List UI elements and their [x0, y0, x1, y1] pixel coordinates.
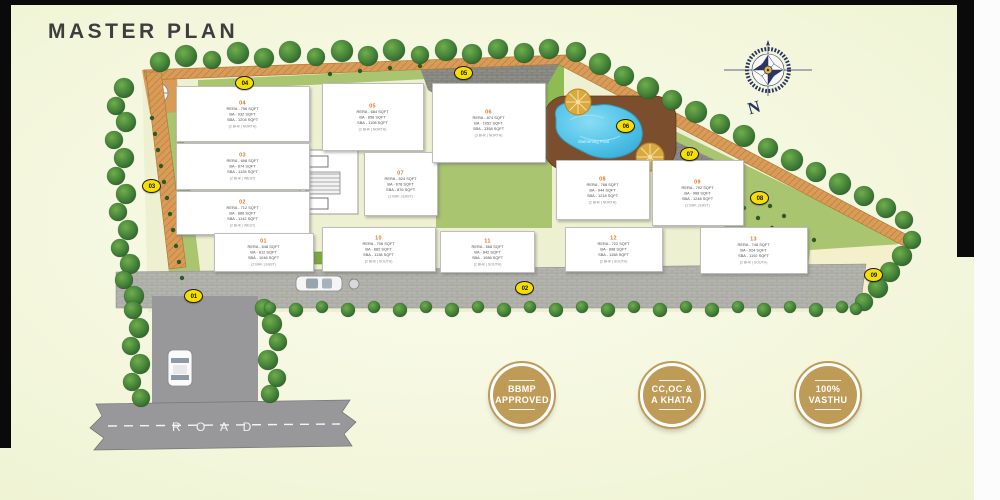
unit-config: (2 BHK | SOUTH) — [365, 259, 393, 264]
tree-icon — [107, 97, 125, 115]
unit-config: (1 BHK | EAST) — [389, 194, 414, 199]
tree-icon — [614, 66, 634, 86]
master-plan-page: { "title": "MASTER PLAN", "compass": { "… — [0, 0, 1000, 500]
hedge-icon — [850, 303, 862, 315]
tree-icon — [150, 52, 170, 72]
tree-icon — [122, 337, 140, 355]
tree-icon — [116, 184, 136, 204]
unit-card: 06 RERA - 874 SQFT BA - 1052 SQFT SBA - … — [432, 83, 546, 163]
tree-icon — [105, 131, 123, 149]
unit-sba: SBA - 1358 SQFT — [473, 127, 504, 132]
badge-line2: APPROVED — [495, 395, 549, 406]
tree-icon — [854, 186, 874, 206]
unit-card: 08 RERA - 768 SQFT BA - 944 SQFT SBA - 1… — [556, 160, 650, 220]
unit-config: (2 BHK | WEST) — [230, 176, 255, 181]
badge-rule — [509, 380, 535, 381]
tree-icon — [566, 42, 586, 62]
badge-line1: 100% — [816, 384, 841, 395]
hedge-icon — [497, 303, 511, 317]
tree-icon — [876, 198, 896, 218]
tree-icon — [203, 51, 221, 69]
unit-number: 05 — [370, 103, 377, 110]
unit-config: (3 BHK | NORTH) — [475, 133, 503, 138]
unit-number: 02 — [240, 199, 247, 206]
unit-ba: BA - 932 SQFT — [230, 112, 256, 117]
tree-icon — [175, 45, 197, 67]
hedge-icon — [601, 303, 615, 317]
unit-ba: BA - 1052 SQFT — [475, 121, 504, 126]
unit-ba: BA - 886 SQFT — [230, 211, 256, 216]
lawn-center — [436, 162, 552, 228]
tree-icon — [130, 354, 150, 374]
tree-icon — [488, 39, 508, 59]
tree-icon — [123, 373, 141, 391]
hedge-icon — [368, 301, 380, 313]
hedge-icon — [420, 301, 432, 313]
shrub-icon — [174, 244, 178, 248]
car-icon — [168, 350, 192, 386]
tree-icon — [662, 90, 682, 110]
unit-config: (2 BHK | NORTH) — [359, 127, 387, 132]
unit-config: (2 BHK | NORTH) — [229, 124, 257, 129]
tree-icon — [109, 203, 127, 221]
tree-icon — [806, 162, 826, 182]
hedge-icon — [289, 303, 303, 317]
unit-card: 01 RERA - 648 SQFT BA - 812 SQFT SBA - 1… — [214, 233, 314, 272]
unit-rera: RERA - 524 SQFT — [385, 177, 417, 182]
hedge-icon — [445, 303, 459, 317]
hedge-icon — [549, 303, 563, 317]
unit-sba: SBA - 1128 SQFT — [228, 170, 259, 175]
badge-rule — [815, 409, 841, 410]
tree-icon — [107, 167, 125, 185]
umbrella-icon — [565, 89, 591, 115]
tree-icon — [129, 318, 149, 338]
site-marker-09: 09 — [864, 268, 883, 282]
tree-icon — [903, 231, 921, 249]
unit-sba: SBA - 1158 SQFT — [599, 253, 630, 258]
unit-config: (2 BHK | SOUTH) — [474, 262, 502, 267]
shrub-icon — [150, 116, 154, 120]
site-marker-04: 04 — [235, 76, 254, 90]
unit-sba: SBA - 1086 SQFT — [472, 256, 503, 261]
unit-ba: BA - 858 SQFT — [360, 115, 386, 120]
unit-number: 07 — [398, 170, 405, 177]
badge-cc-oc-khata: CC,OC & A KHATA — [638, 361, 706, 429]
unit-card: 09 RERA - 792 SQFT BA - 968 SQFT SBA - 1… — [652, 160, 744, 226]
badge-line2: VASTHU — [809, 395, 848, 406]
tree-icon — [829, 173, 851, 195]
hedge-icon — [264, 302, 276, 314]
hedge-icon — [576, 301, 588, 313]
unit-number: 04 — [240, 100, 247, 107]
tree-icon — [227, 42, 249, 64]
unit-sba: SBA - 1142 SQFT — [228, 217, 259, 222]
shrub-icon — [168, 212, 172, 216]
unit-ba: BA - 968 SQFT — [685, 191, 711, 196]
tree-icon — [637, 77, 659, 99]
unit-card: 02 RERA - 712 SQFT BA - 886 SQFT SBA - 1… — [176, 191, 310, 235]
unit-sba: SBA - 1218 SQFT — [587, 194, 618, 199]
unit-card: 03 RERA - 698 SQFT BA - 874 SQFT SBA - 1… — [176, 143, 310, 190]
unit-card: 07 RERA - 524 SQFT BA - 678 SQFT SBA - 8… — [364, 152, 438, 216]
tree-icon — [514, 43, 534, 63]
tree-icon — [331, 40, 353, 62]
unit-ba: BA - 944 SQFT — [590, 188, 616, 193]
site-marker-05: 05 — [454, 66, 473, 80]
site-marker-06: 06 — [616, 119, 635, 133]
hedge-icon — [836, 301, 848, 313]
tree-icon — [895, 211, 913, 229]
hedge-icon — [757, 303, 771, 317]
site-marker-03: 03 — [142, 179, 161, 193]
unit-card: 05 RERA - 684 SQFT BA - 858 SQFT SBA - 1… — [322, 83, 424, 151]
tree-icon — [268, 369, 286, 387]
shrub-icon — [812, 238, 816, 242]
hedge-icon — [316, 301, 328, 313]
shrub-icon — [156, 148, 160, 152]
shrub-icon — [153, 132, 157, 136]
hedge-icon — [784, 301, 796, 313]
tree-icon — [589, 53, 611, 75]
badge-rule — [815, 380, 841, 381]
unit-card: 12 RERA - 722 SQFT BA - 898 SQFT SBA - 1… — [565, 227, 663, 272]
unit-rera: RERA - 756 SQFT — [227, 107, 259, 112]
tree-icon — [118, 220, 138, 240]
shrub-icon — [388, 66, 392, 70]
tree-icon — [258, 350, 278, 370]
unit-number: 09 — [695, 179, 702, 186]
tree-icon — [124, 301, 142, 319]
tree-icon — [115, 271, 133, 289]
hedge-icon — [732, 301, 744, 313]
unit-ba: BA - 678 SQFT — [388, 182, 414, 187]
unit-sba: SBA - 1204 SQFT — [227, 118, 258, 123]
access-road — [152, 296, 258, 404]
shrub-icon — [358, 69, 362, 73]
tree-icon — [781, 149, 803, 171]
unit-number: 08 — [600, 176, 607, 183]
tree-icon — [261, 385, 279, 403]
unit-sba: SBA - 1192 SQFT — [739, 254, 770, 259]
tree-icon — [733, 125, 755, 147]
unit-config: (2 BHK | EAST) — [686, 203, 711, 208]
shrub-icon — [328, 72, 332, 76]
shrub-icon — [177, 260, 181, 264]
hedge-icon — [341, 303, 355, 317]
unit-card: 10 RERA - 706 SQFT BA - 882 SQFT SBA - 1… — [322, 227, 436, 272]
badge-rule — [509, 409, 535, 410]
unit-sba: SBA - 1046 SQFT — [248, 256, 279, 261]
site-marker-07: 07 — [680, 147, 699, 161]
shrub-icon — [180, 276, 184, 280]
tree-icon — [383, 39, 405, 61]
hedge-icon — [524, 301, 536, 313]
site-marker-01: 01 — [184, 289, 203, 303]
unit-rera: RERA - 874 SQFT — [473, 116, 505, 121]
unit-config: (2 BHK | WEST) — [230, 223, 255, 228]
hedge-icon — [705, 303, 719, 317]
unit-sba: SBA - 1248 SQFT — [682, 197, 713, 202]
tree-icon — [539, 39, 559, 59]
unit-number: 06 — [486, 109, 493, 116]
shrub-icon — [756, 216, 760, 220]
shrub-icon — [768, 204, 772, 208]
bike-icon — [349, 279, 359, 289]
tree-icon — [358, 46, 378, 66]
hedge-icon — [393, 303, 407, 317]
shrub-icon — [165, 196, 169, 200]
tree-icon — [435, 39, 457, 61]
hedge-icon — [472, 301, 484, 313]
tree-icon — [685, 101, 707, 123]
road-label: R O A D — [172, 420, 257, 434]
shrub-icon — [159, 164, 163, 168]
tree-icon — [462, 44, 482, 64]
tree-icon — [262, 314, 282, 334]
unit-ba: BA - 842 SQFT — [474, 250, 500, 255]
hedge-icon — [680, 301, 692, 313]
unit-rera: RERA - 712 SQFT — [227, 206, 259, 211]
shrub-icon — [171, 228, 175, 232]
site-marker-08: 08 — [750, 191, 769, 205]
hedge-icon — [653, 303, 667, 317]
tree-icon — [254, 48, 274, 68]
unit-card: 11 RERA - 668 SQFT BA - 842 SQFT SBA - 1… — [440, 231, 535, 273]
badge-line1: CC,OC & — [652, 384, 693, 395]
tree-icon — [132, 389, 150, 407]
compass-icon — [722, 34, 814, 110]
badge-bbmp-approved: BBMP APPROVED — [488, 361, 556, 429]
shrub-icon — [782, 214, 786, 218]
badge-rule — [659, 409, 685, 410]
badge-vasthu: 100% VASTHU — [794, 361, 862, 429]
unit-sba: SBA - 876 SQFT — [386, 188, 415, 193]
unit-rera: RERA - 684 SQFT — [357, 110, 389, 115]
unit-config: (2 BHK | SOUTH) — [740, 260, 768, 265]
tree-icon — [710, 114, 730, 134]
tree-icon — [279, 41, 301, 63]
hedge-icon — [809, 303, 823, 317]
unit-rera: RERA - 668 SQFT — [471, 245, 503, 250]
tree-icon — [307, 48, 325, 66]
unit-number: 11 — [484, 238, 491, 245]
unit-rera: RERA - 792 SQFT — [682, 186, 714, 191]
car-icon — [296, 276, 342, 291]
tree-icon — [114, 148, 134, 168]
badge-line1: BBMP — [508, 384, 536, 395]
unit-config: (2 BHK | EAST) — [252, 262, 277, 267]
tree-icon — [114, 78, 134, 98]
pool-label: Swimming Pool — [578, 139, 609, 144]
tree-icon — [411, 46, 429, 64]
shrub-icon — [162, 180, 166, 184]
shrub-icon — [418, 64, 422, 68]
badge-line2: A KHATA — [651, 395, 693, 406]
tree-icon — [758, 138, 778, 158]
hedge-icon — [628, 301, 640, 313]
unit-sba: SBA - 1108 SQFT — [358, 121, 389, 126]
site-marker-02: 02 — [515, 281, 534, 295]
unit-rera: RERA - 768 SQFT — [587, 183, 619, 188]
unit-card: 04 RERA - 756 SQFT BA - 932 SQFT SBA - 1… — [176, 86, 310, 142]
unit-card: 13 RERA - 748 SQFT BA - 924 SQFT SBA - 1… — [700, 227, 808, 274]
tree-icon — [269, 333, 287, 351]
unit-config: (2 BHK | SOUTH) — [600, 259, 628, 264]
tree-icon — [111, 239, 129, 257]
tree-icon — [116, 112, 136, 132]
unit-sba: SBA - 1138 SQFT — [364, 253, 395, 258]
unit-config: (2 BHK | NORTH) — [589, 200, 617, 205]
badge-rule — [659, 380, 685, 381]
